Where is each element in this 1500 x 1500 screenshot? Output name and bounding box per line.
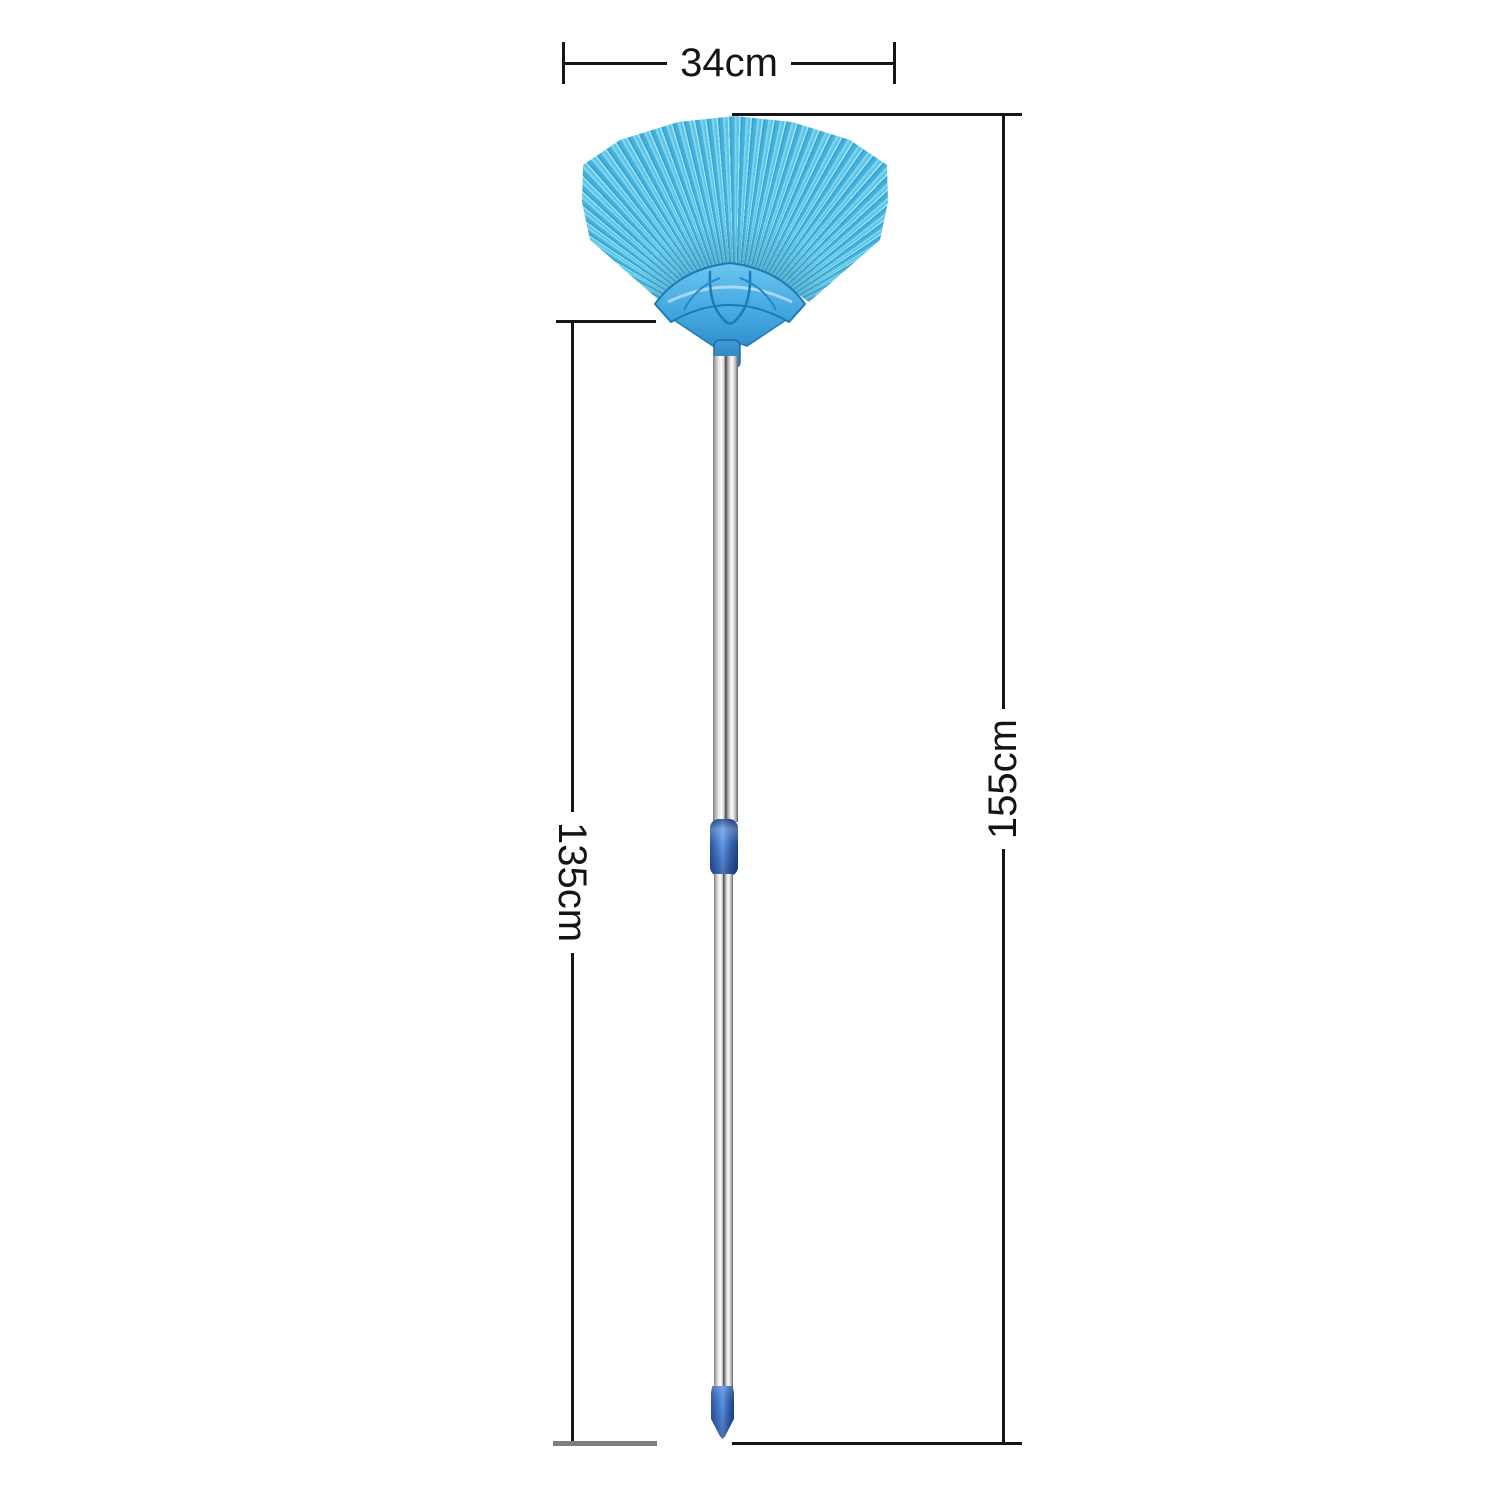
head-width-dimension: 34cm: [562, 42, 896, 84]
total-length-bottom-cap: [732, 1442, 1022, 1445]
dimension-line-upper: [571, 323, 574, 812]
dimension-line-upper: [1002, 116, 1005, 709]
head-width-dimension-label: 34cm: [667, 43, 791, 83]
total-length-top-cap: [732, 113, 1022, 116]
product-dimension-diagram: 34cm 155cm 135cm: [0, 0, 1500, 1500]
handle-telescopic-connector: [710, 819, 738, 876]
total-length-dimension: 155cm: [983, 116, 1023, 1442]
dimension-tick-right: [893, 42, 896, 84]
handle-end-cap: [711, 1386, 734, 1439]
dimension-line-lower: [571, 953, 574, 1442]
dimension-line-lower: [1002, 849, 1005, 1442]
dimension-line-left: [565, 62, 667, 65]
handle-pole-lower: [714, 874, 733, 1388]
handle-pole-upper: [713, 356, 738, 822]
pole-length-baseline: [553, 1441, 657, 1446]
pole-length-dimension: 135cm: [552, 323, 592, 1442]
total-length-dimension-label: 155cm: [983, 709, 1023, 849]
dimension-line-right: [791, 62, 893, 65]
pole-length-dimension-label: 135cm: [552, 812, 592, 952]
